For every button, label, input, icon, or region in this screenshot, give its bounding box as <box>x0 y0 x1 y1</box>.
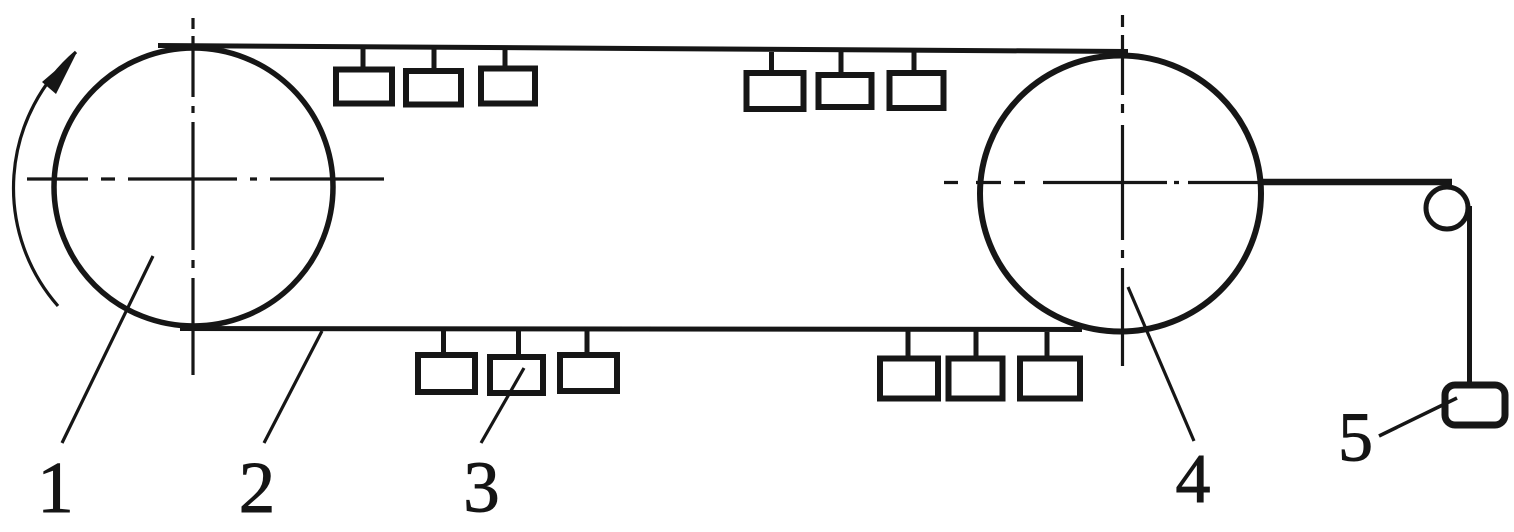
svg-text:2: 2 <box>239 447 276 528</box>
svg-text:4: 4 <box>1176 441 1211 518</box>
svg-text:3: 3 <box>463 447 500 528</box>
svg-text:5: 5 <box>1338 400 1373 477</box>
svg-text:1: 1 <box>37 447 74 528</box>
